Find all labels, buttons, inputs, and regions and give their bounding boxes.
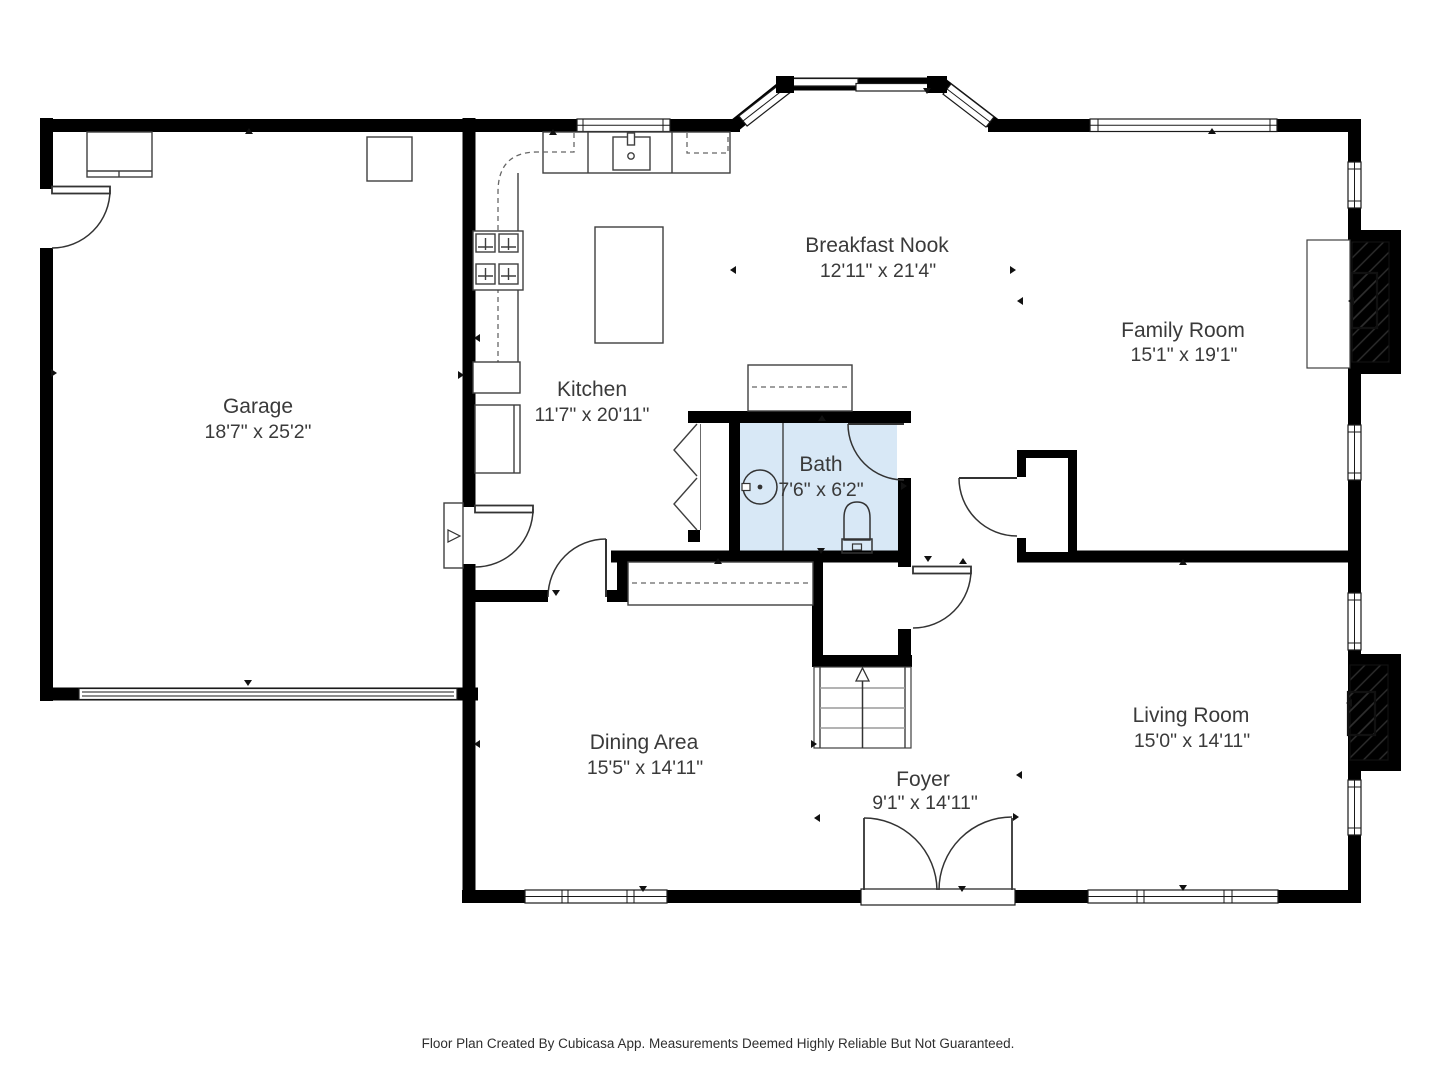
footer-disclaimer: Floor Plan Created By Cubicasa App. Meas…: [422, 1036, 1015, 1051]
label-bath: Bath: [799, 453, 842, 476]
family-top-window: [1090, 119, 1277, 132]
dims-kitchen: 11'7" x 20'11": [535, 404, 650, 426]
living-bottom-windows: [1088, 890, 1278, 903]
living-fireplace: [1348, 665, 1388, 760]
garage-door: [79, 689, 457, 700]
label-breakfast-nook: Breakfast Nook: [805, 234, 949, 257]
family-right-window-2: [1348, 425, 1361, 480]
label-family-room: Family Room: [1121, 319, 1245, 342]
dims-foyer: 9'1" x 14'11": [872, 792, 978, 814]
kitchen-window: [577, 119, 670, 132]
family-firebox: [1352, 273, 1377, 328]
dining-bottom-windows: [525, 890, 667, 903]
living-firebox: [1348, 692, 1375, 735]
label-kitchen: Kitchen: [557, 378, 627, 401]
floor-plan-page: Garage 18'7" x 25'2" Kitchen 11'7" x 20'…: [0, 0, 1440, 1080]
dims-living-room: 15'0" x 14'11": [1134, 730, 1250, 752]
label-garage: Garage: [223, 395, 293, 418]
family-right-window-1: [1348, 162, 1361, 208]
living-right-window-1: [1348, 593, 1361, 650]
dims-family-room: 15'1" x 19'1": [1131, 344, 1238, 366]
dims-breakfast-nook: 12'11" x 21'4": [820, 260, 936, 282]
hall-storage-closet: [628, 562, 813, 605]
room-family-room: [1000, 133, 1348, 551]
label-dining-area: Dining Area: [590, 731, 699, 754]
floor-plan-canvas: Garage 18'7" x 25'2" Kitchen 11'7" x 20'…: [0, 0, 1440, 1080]
dims-bath: 7'6" x 6'2": [778, 479, 863, 501]
dims-dining-area: 15'5" x 14'11": [587, 757, 703, 779]
label-living-room: Living Room: [1133, 704, 1250, 727]
room-kitchen: [476, 133, 706, 553]
dims-garage: 18'7" x 25'2": [205, 421, 312, 443]
label-foyer: Foyer: [896, 768, 950, 791]
living-right-window-2: [1348, 780, 1361, 835]
